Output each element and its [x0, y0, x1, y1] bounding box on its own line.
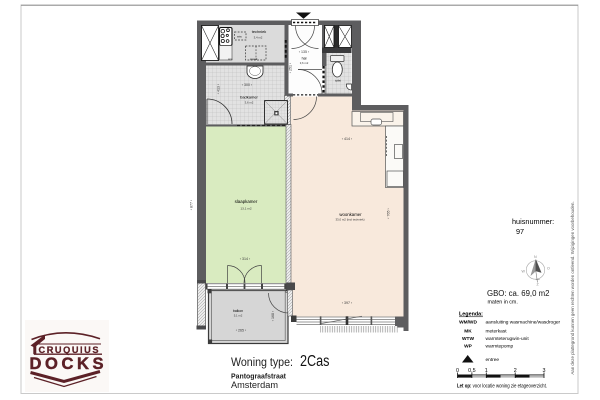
svg-text:toilet: toilet [335, 79, 341, 83]
svg-text:huisnummer:: huisnummer: [512, 217, 554, 226]
svg-text:O: O [547, 267, 550, 271]
svg-text:MK: MK [464, 329, 472, 335]
svg-text:Let op: voor locatie woning z: Let op: voor locatie woning zie etageove… [457, 384, 547, 390]
svg-text:3,6 m2: 3,6 m2 [245, 101, 254, 105]
svg-text:‹ 135 ›: ‹ 135 › [299, 50, 310, 54]
svg-text:‹ 414 ›: ‹ 414 › [342, 137, 353, 141]
svg-text:CRUQUIUS: CRUQUIUS [39, 345, 99, 355]
svg-text:‹ 413 ›: ‹ 413 › [217, 83, 221, 94]
svg-text:‹ 877 ›: ‹ 877 › [190, 199, 194, 210]
svg-text:balkon: balkon [233, 309, 243, 313]
svg-text:WM/WD: WM/WD [459, 320, 477, 326]
svg-text:badkamer: badkamer [240, 95, 258, 100]
svg-text:‹ 168 ›: ‹ 168 › [271, 310, 275, 321]
svg-text:‹ 265 ›: ‹ 265 › [236, 329, 247, 333]
svg-text:‹ 765 ›: ‹ 765 › [387, 208, 391, 219]
svg-text:hal: hal [302, 57, 307, 61]
svg-text:W: W [522, 270, 526, 274]
svg-text:meterkast: meterkast [486, 329, 508, 335]
svg-text:WTW: WTW [462, 336, 474, 342]
svg-text:warmtepomp: warmtepomp [486, 344, 514, 350]
svg-text:entree: entree [486, 357, 500, 363]
svg-text:warmteterugwin-unit: warmteterugwin-unit [486, 336, 530, 342]
svg-text:33,0 m2 (incl techniek): 33,0 m2 (incl techniek) [335, 218, 364, 222]
svg-text:3,6 m2: 3,6 m2 [300, 61, 309, 65]
svg-text:97: 97 [516, 227, 524, 236]
svg-text:techniek: techniek [252, 29, 267, 34]
svg-text:Legenda:: Legenda: [459, 312, 483, 318]
svg-text:woonkamer: woonkamer [339, 212, 362, 217]
svg-text:3,4 m2: 3,4 m2 [254, 36, 263, 40]
svg-text:N: N [534, 255, 537, 259]
svg-text:aansluiting wasmachine/wasdrog: aansluiting wasmachine/wasdroger [486, 320, 561, 326]
svg-text:5,1 m2: 5,1 m2 [234, 314, 243, 318]
svg-text:maten in cm.: maten in cm. [488, 300, 518, 306]
svg-text:Aan deze plattegrond kunnen ge: Aan deze plattegrond kunnen geen rechten… [570, 201, 575, 374]
svg-text:‹ 397 ›: ‹ 397 › [342, 301, 353, 305]
svg-text:DOCKS: DOCKS [30, 355, 104, 373]
svg-text:WP: WP [464, 344, 473, 350]
svg-text:Woning type:: Woning type: [231, 355, 293, 369]
svg-text:‹ 314 ›: ‹ 314 › [240, 257, 251, 261]
svg-text:Amsterdam: Amsterdam [231, 380, 278, 390]
svg-text:GBO: ca. 69,0 m2: GBO: ca. 69,0 m2 [487, 289, 549, 298]
svg-text:wasdr: wasdr [250, 57, 258, 61]
svg-text:slaapkamer: slaapkamer [235, 199, 258, 204]
svg-text:13,1 m2: 13,1 m2 [240, 207, 251, 211]
svg-text:‹ 300 ›: ‹ 300 › [242, 83, 253, 87]
svg-text:2Cas: 2Cas [300, 353, 330, 370]
svg-text:wm: wm [228, 57, 233, 61]
svg-text:‹ 251 ›: ‹ 251 › [289, 62, 293, 73]
